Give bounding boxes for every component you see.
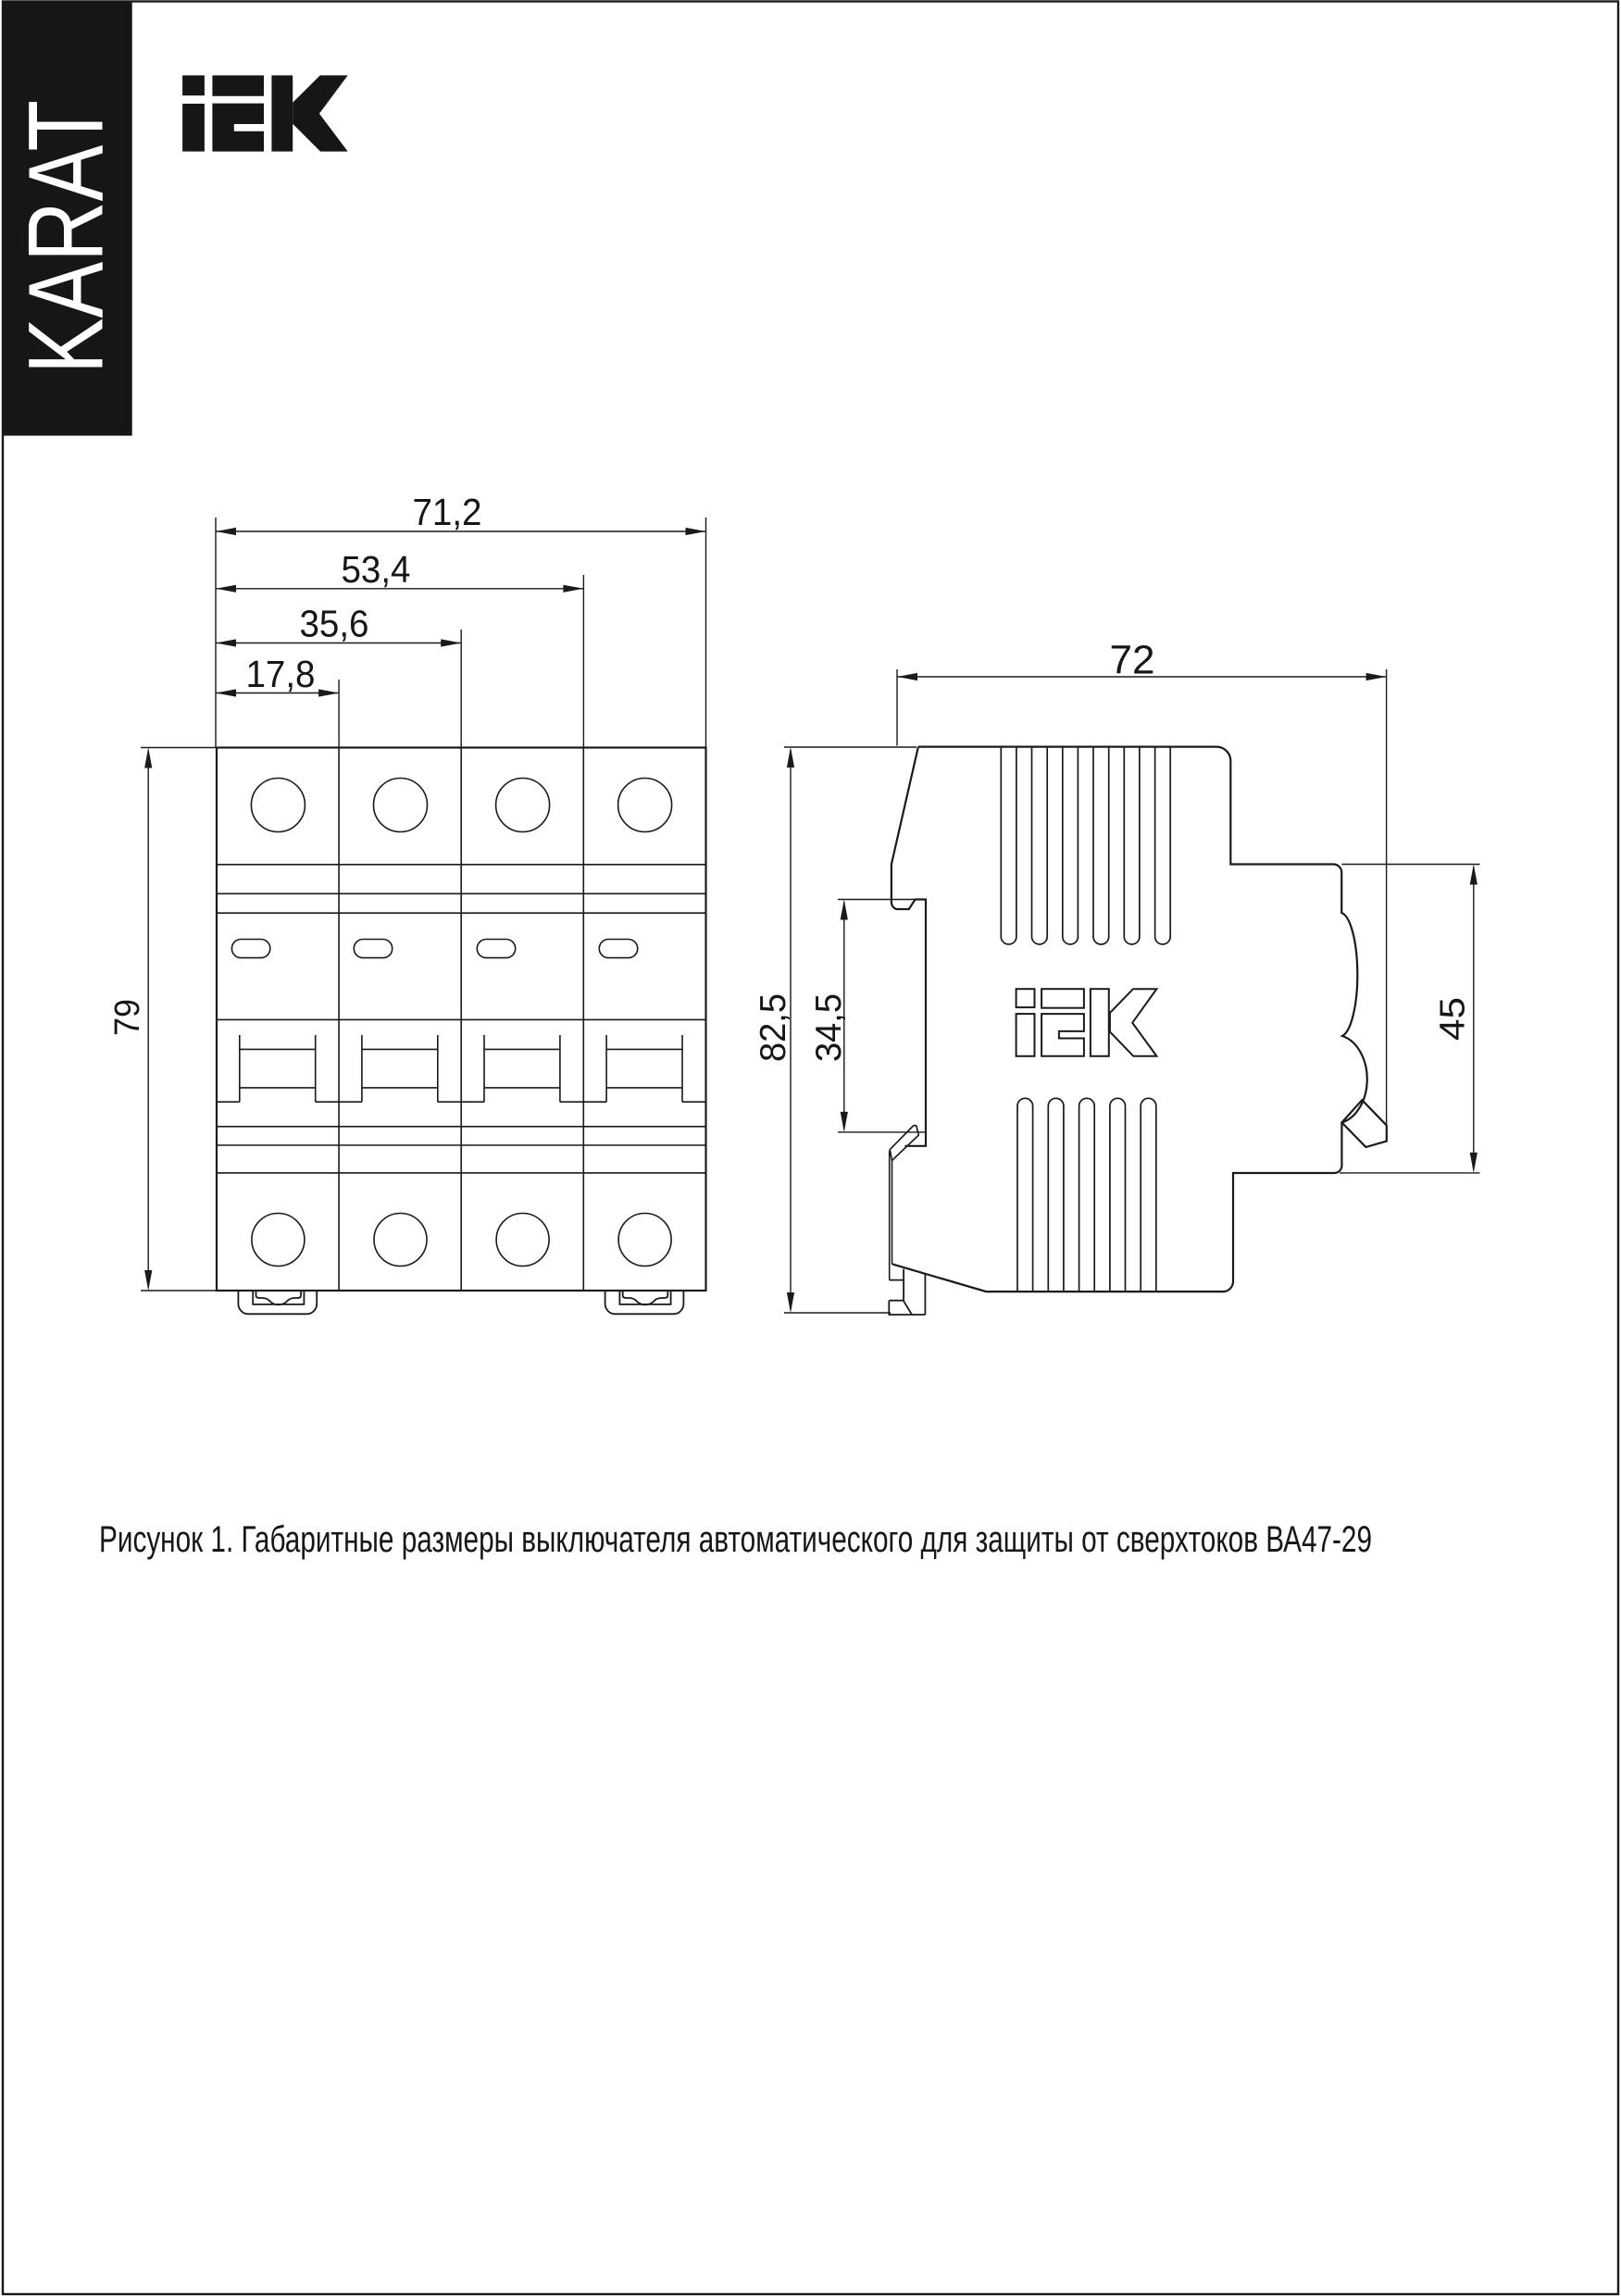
svg-text:71,2: 71,2 xyxy=(413,491,482,533)
svg-text:35,6: 35,6 xyxy=(300,603,369,645)
svg-text:45: 45 xyxy=(1434,997,1473,1041)
svg-text:34,5: 34,5 xyxy=(809,993,849,1062)
svg-text:Рисунок 1. Габаритные размеры: Рисунок 1. Габаритные размеры выключател… xyxy=(99,1519,1372,1560)
svg-text:82,5: 82,5 xyxy=(754,993,793,1062)
svg-text:KARAT: KARAT xyxy=(7,100,126,374)
svg-text:53,4: 53,4 xyxy=(342,548,411,591)
svg-text:17,8: 17,8 xyxy=(246,653,316,695)
svg-text:79: 79 xyxy=(108,999,147,1036)
svg-text:72: 72 xyxy=(1110,639,1155,683)
